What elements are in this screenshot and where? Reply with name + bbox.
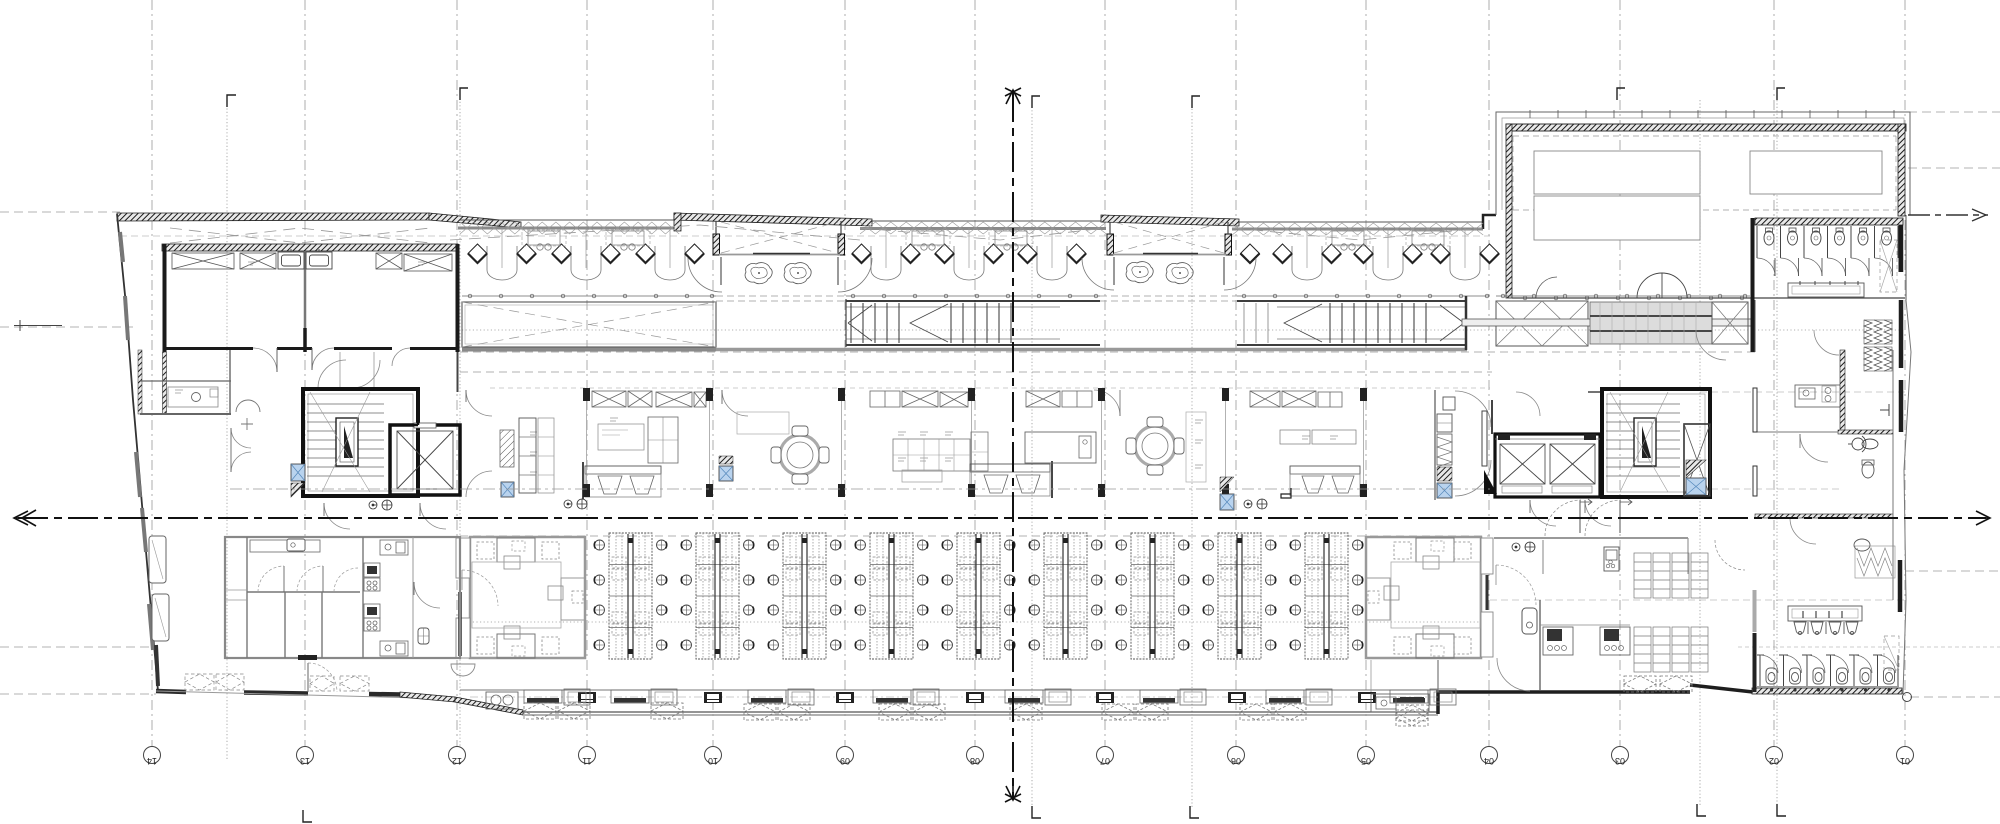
- svg-text:10: 10: [708, 756, 718, 766]
- svg-text:12: 12: [452, 756, 462, 766]
- svg-text:04: 04: [1484, 756, 1494, 766]
- svg-text:05: 05: [1361, 756, 1371, 766]
- svg-text:02: 02: [1769, 756, 1779, 766]
- svg-text:08: 08: [970, 756, 980, 766]
- svg-text:11: 11: [582, 756, 591, 766]
- svg-text:01: 01: [1900, 756, 1910, 766]
- svg-text:06: 06: [1231, 756, 1241, 766]
- svg-text:13: 13: [300, 756, 310, 766]
- svg-text:09: 09: [840, 756, 850, 766]
- svg-text:03: 03: [1615, 756, 1625, 766]
- svg-text:14: 14: [147, 756, 157, 766]
- svg-text:07: 07: [1100, 756, 1110, 766]
